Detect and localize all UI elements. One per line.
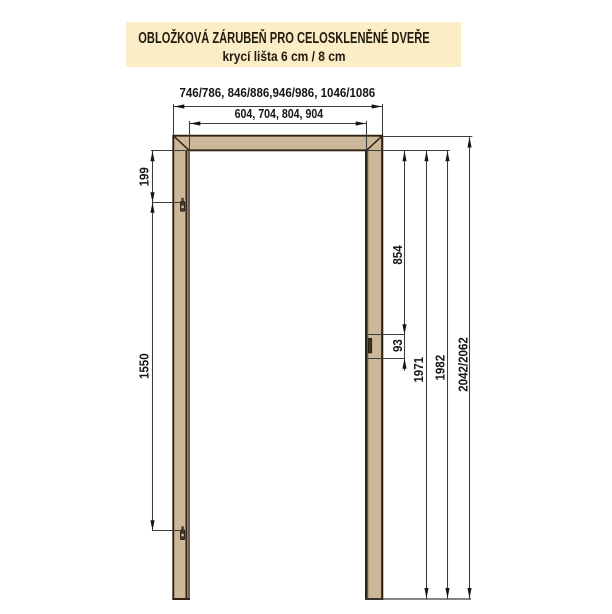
svg-text:604, 704, 804, 904: 604, 704, 804, 904	[235, 106, 324, 121]
svg-text:1982: 1982	[433, 355, 448, 381]
svg-text:2042/2062: 2042/2062	[456, 337, 471, 392]
svg-text:746/786, 846/886,946/986, 1046: 746/786, 846/886,946/986, 1046/1086	[179, 85, 375, 100]
svg-text:1971: 1971	[411, 357, 426, 383]
svg-text:854: 854	[390, 245, 405, 264]
svg-text:199: 199	[137, 167, 152, 186]
svg-text:1550: 1550	[137, 353, 152, 379]
svg-text:93: 93	[390, 339, 405, 352]
